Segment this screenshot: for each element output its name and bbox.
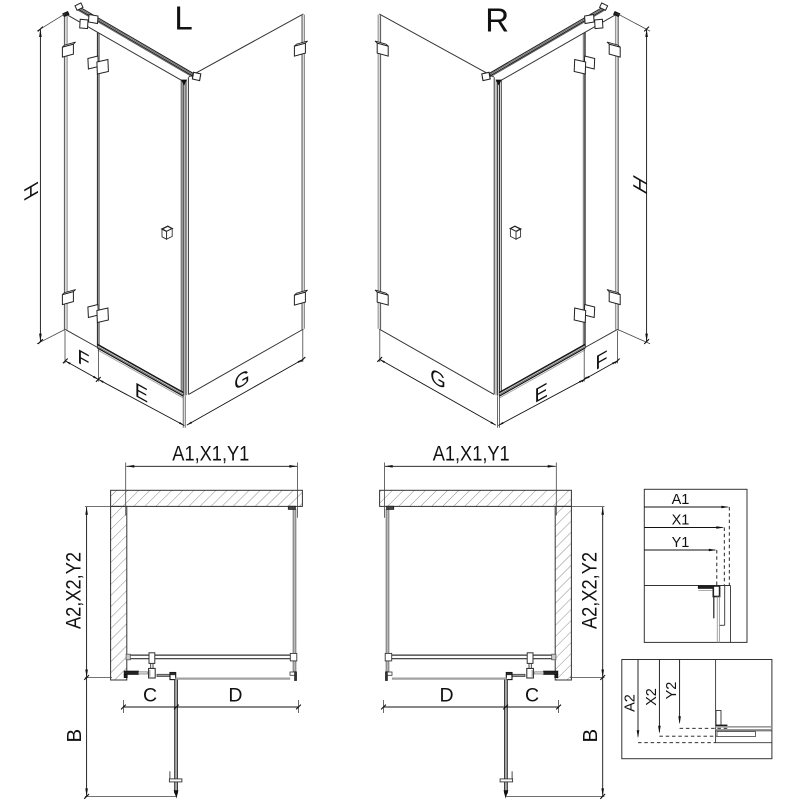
svg-text:X1: X1 bbox=[672, 513, 690, 529]
svg-text:A2: A2 bbox=[623, 694, 639, 712]
svg-text:C: C bbox=[525, 685, 539, 707]
svg-text:X2: X2 bbox=[644, 688, 660, 706]
svg-text:D: D bbox=[440, 685, 454, 707]
svg-text:D: D bbox=[228, 685, 242, 707]
svg-text:B: B bbox=[63, 729, 86, 743]
svg-text:A1,X1,Y1: A1,X1,Y1 bbox=[433, 441, 510, 465]
svg-text:A2,X2,Y2: A2,X2,Y2 bbox=[577, 552, 601, 629]
svg-text:R: R bbox=[485, 2, 509, 39]
svg-text:A1: A1 bbox=[672, 492, 690, 508]
svg-text:A1,X1,Y1: A1,X1,Y1 bbox=[172, 441, 249, 465]
svg-text:B: B bbox=[579, 729, 602, 743]
svg-text:C: C bbox=[143, 685, 157, 707]
svg-text:L: L bbox=[174, 0, 192, 37]
svg-text:Y2: Y2 bbox=[664, 682, 680, 700]
svg-text:A2,X2,Y2: A2,X2,Y2 bbox=[61, 552, 85, 629]
svg-text:Y1: Y1 bbox=[672, 535, 690, 551]
